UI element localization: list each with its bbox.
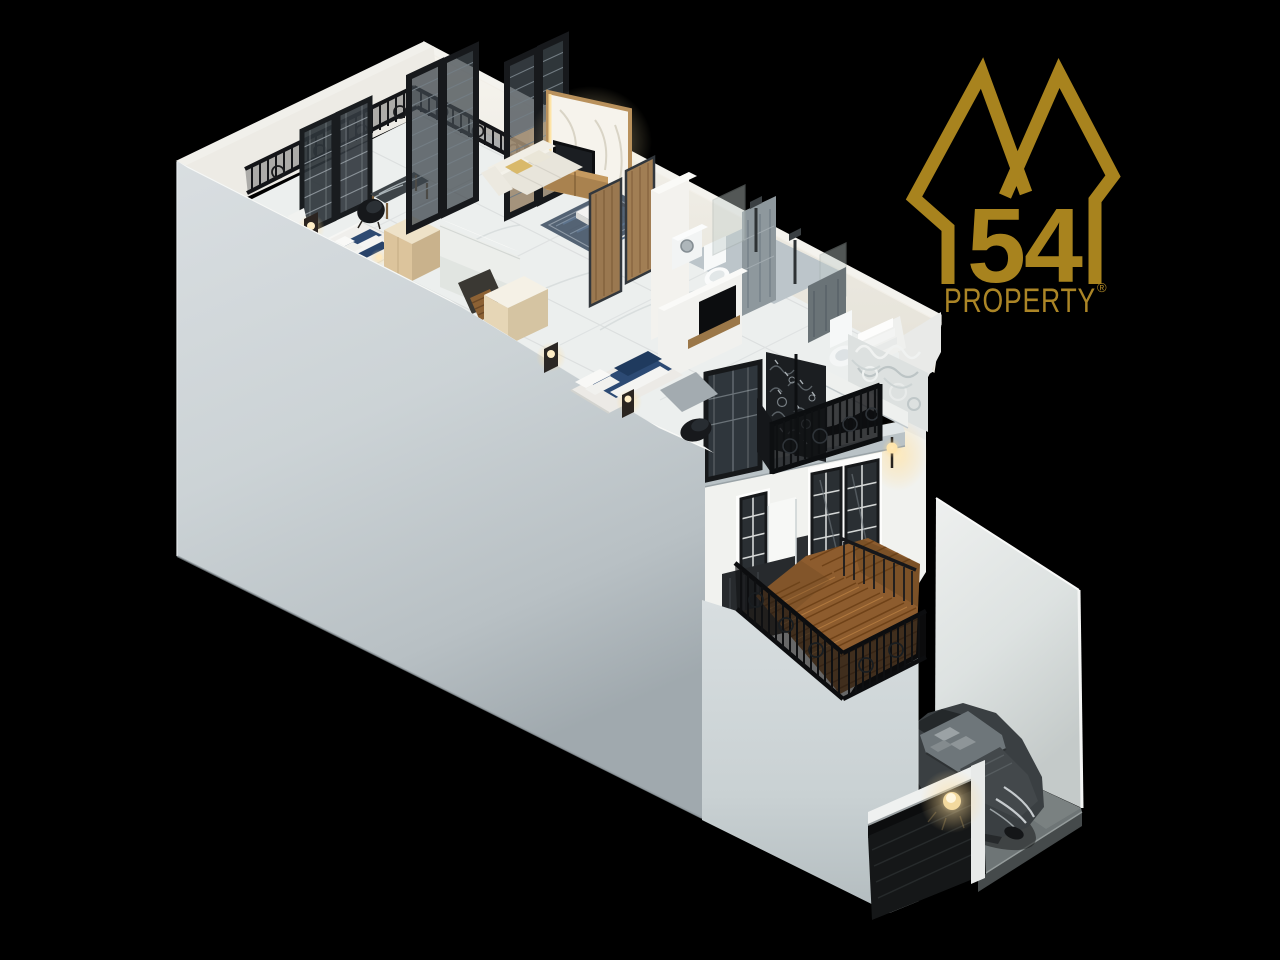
- svg-text:PROPERTY: PROPERTY: [944, 282, 1096, 320]
- svg-text:®: ®: [1097, 280, 1107, 295]
